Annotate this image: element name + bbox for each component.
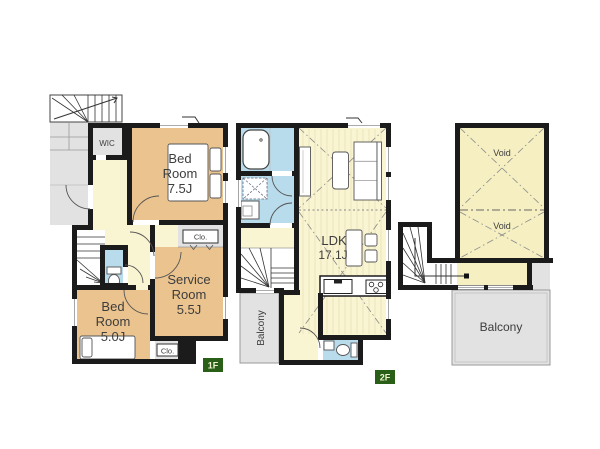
bedroom-50-label-3: 5.0J: [101, 329, 126, 344]
bed-75-pillow-1: [210, 148, 221, 171]
kitchen-counter: [320, 276, 388, 296]
closet-lower-label: Clo.: [161, 347, 174, 356]
hall-corridor: [128, 225, 150, 290]
coffee-table: [333, 152, 349, 189]
bedroom-75-label-2: Room: [163, 166, 198, 181]
window-flag-2f: [346, 118, 362, 123]
service-label-2: Room: [172, 287, 207, 302]
window-flag-1f: [182, 117, 199, 123]
sofa: [354, 142, 377, 200]
ldk-label-1: LDK: [321, 233, 347, 248]
closet-upper-label: Clo.: [194, 233, 207, 242]
void-lower-label: Void: [493, 221, 511, 231]
toilet-2f-sink: [324, 341, 334, 350]
dining-table: [346, 230, 362, 266]
bedroom-75-label-1: Bed: [168, 151, 191, 166]
floorplan-page: WIC Bed Room 7.5J Clo. Service Room 5.5J…: [0, 0, 600, 449]
balcony-2f-label: Balcony: [256, 310, 267, 346]
bathtub: [243, 130, 269, 169]
kitchen-stove: [366, 280, 387, 294]
bedroom-50-label-1: Bed: [101, 299, 124, 314]
bed-75-pillow-2: [210, 174, 221, 198]
hall-upper: [93, 160, 127, 225]
floor-1f-plan: WIC Bed Room 7.5J Clo. Service Room 5.5J…: [50, 95, 228, 372]
balcony-attic-label: Balcony: [480, 320, 523, 334]
bedroom-75-label-3: 7.5J: [168, 181, 193, 196]
attic-plan: Void Void Balcony: [398, 123, 553, 365]
floor-2f-plan: LDK 17.1J Balcony 2F: [236, 118, 395, 384]
lower-hall-floor: [284, 293, 318, 360]
dining-chair-1: [365, 234, 377, 246]
exterior-stairs: [50, 95, 122, 122]
tv-board: [300, 147, 311, 196]
floor-1f-badge-label: 1F: [208, 361, 219, 371]
service-entry: [155, 225, 178, 247]
balcony-notch: [532, 263, 550, 290]
service-label-3: 5.5J: [177, 302, 202, 317]
stairs-hall-floor: [241, 228, 295, 248]
ldk-label-2: 17.1J: [318, 248, 347, 262]
dining-chair-2: [365, 250, 377, 262]
service-label-1: Service: [167, 272, 210, 287]
void-upper-label: Void: [493, 148, 511, 158]
floor-2f-badge-label: 2F: [380, 373, 391, 383]
bed-50-pillow: [82, 338, 92, 357]
sofa-back: [377, 142, 382, 200]
bedroom-50-label-2: Room: [96, 314, 131, 329]
floorplan-image: WIC Bed Room 7.5J Clo. Service Room 5.5J…: [0, 0, 600, 449]
wic-label: WIC: [99, 139, 115, 148]
